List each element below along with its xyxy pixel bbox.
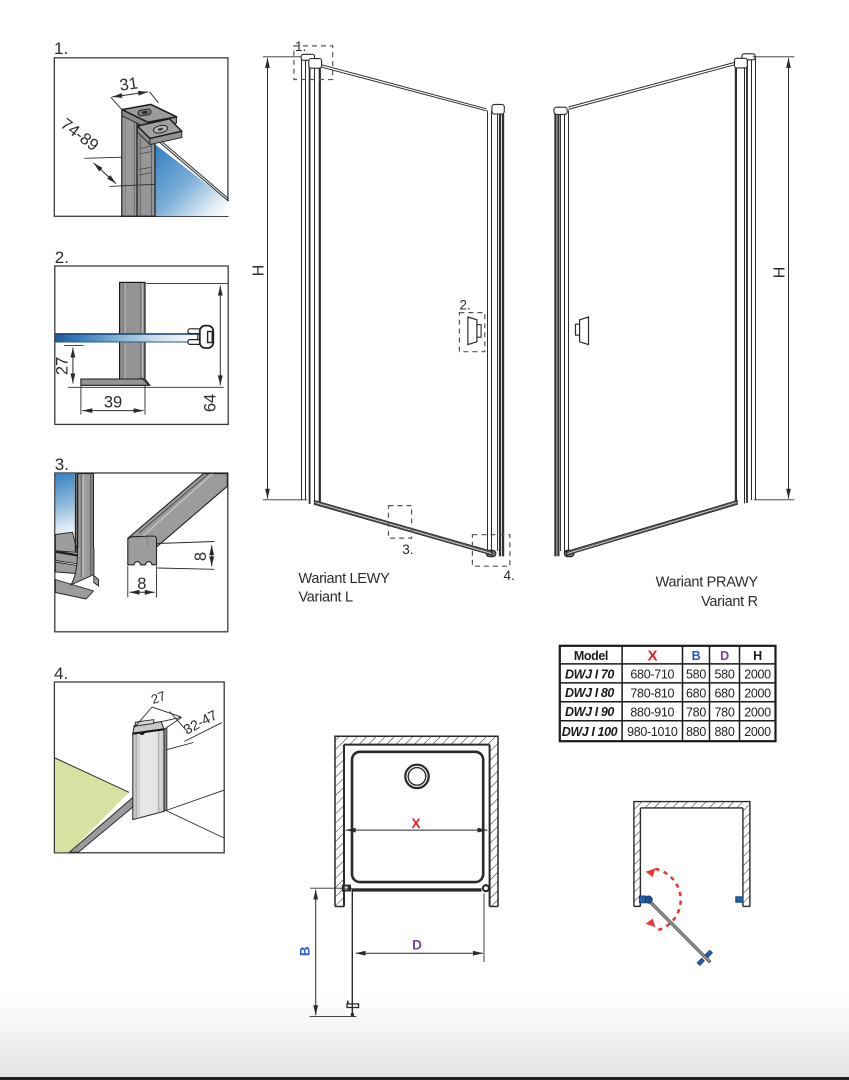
- svg-text:1.: 1.: [295, 39, 306, 54]
- svg-text:780: 780: [686, 705, 706, 719]
- svg-text:D: D: [720, 649, 729, 663]
- svg-text:31: 31: [118, 74, 139, 94]
- svg-text:4.: 4.: [504, 568, 515, 583]
- svg-text:H: H: [753, 649, 762, 663]
- svg-text:B: B: [298, 946, 313, 956]
- svg-text:DWJ I 80: DWJ I 80: [565, 686, 614, 700]
- svg-text:Wariant PRAWY: Wariant PRAWY: [656, 575, 759, 591]
- svg-text:980-1010: 980-1010: [627, 725, 678, 739]
- svg-text:H: H: [772, 267, 789, 279]
- svg-text:880-910: 880-910: [630, 705, 674, 719]
- svg-text:2.: 2.: [460, 298, 471, 313]
- svg-text:27: 27: [54, 357, 72, 375]
- svg-text:X: X: [647, 648, 657, 665]
- svg-text:X: X: [411, 816, 420, 831]
- svg-text:DWJ I 100: DWJ I 100: [562, 725, 618, 739]
- svg-text:DWJ I 90: DWJ I 90: [565, 705, 614, 719]
- svg-text:8: 8: [137, 575, 146, 593]
- svg-text:2000: 2000: [744, 705, 771, 719]
- svg-text:3.: 3.: [55, 455, 69, 474]
- svg-text:2.: 2.: [55, 248, 69, 267]
- svg-text:2000: 2000: [744, 668, 771, 682]
- svg-text:39: 39: [104, 394, 122, 412]
- svg-text:DWJ I 70: DWJ I 70: [565, 667, 614, 681]
- svg-text:4.: 4.: [54, 664, 68, 683]
- svg-text:H: H: [251, 265, 268, 277]
- svg-text:64: 64: [202, 394, 220, 412]
- svg-text:3.: 3.: [402, 542, 413, 557]
- svg-text:Variant L: Variant L: [299, 590, 353, 606]
- svg-text:2000: 2000: [744, 686, 771, 700]
- svg-text:Variant R: Variant R: [701, 594, 758, 610]
- svg-text:880: 880: [715, 725, 735, 739]
- svg-text:2000: 2000: [744, 725, 771, 739]
- svg-text:680: 680: [715, 686, 735, 700]
- svg-text:8: 8: [192, 552, 210, 561]
- svg-text:680-710: 680-710: [630, 668, 674, 682]
- svg-text:B: B: [692, 649, 701, 663]
- svg-text:Model: Model: [574, 649, 608, 663]
- svg-text:1.: 1.: [54, 39, 68, 58]
- svg-text:680: 680: [686, 686, 706, 700]
- svg-text:780: 780: [715, 705, 735, 719]
- svg-text:Wariant LEWY: Wariant LEWY: [299, 571, 391, 587]
- svg-text:580: 580: [686, 668, 706, 682]
- svg-text:780-810: 780-810: [630, 686, 674, 700]
- svg-text:D: D: [412, 938, 422, 953]
- svg-text:880: 880: [686, 725, 706, 739]
- svg-text:580: 580: [715, 668, 735, 682]
